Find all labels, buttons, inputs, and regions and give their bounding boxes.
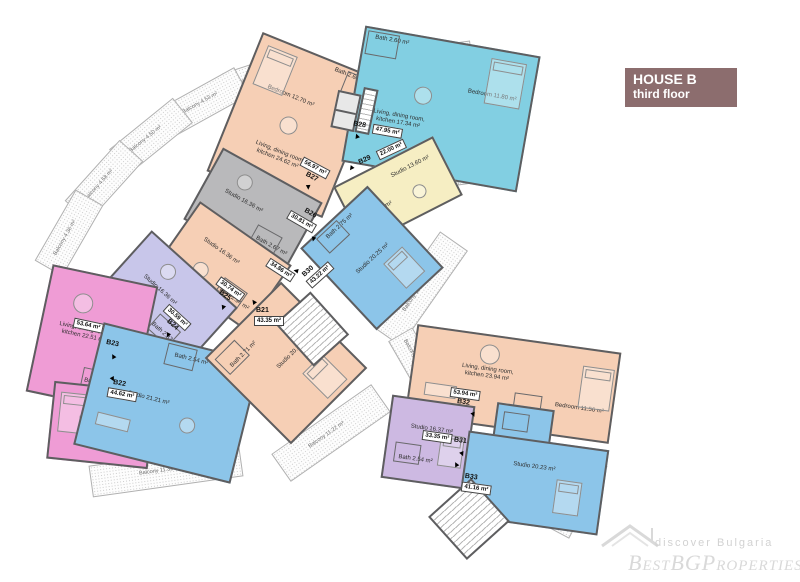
table-furniture [413, 85, 434, 106]
table-furniture [410, 182, 429, 201]
table-furniture [177, 416, 196, 435]
balcony-label: Balcony 11.22 m² [307, 420, 345, 449]
unit-id: B32 [457, 398, 471, 407]
pillow [585, 369, 612, 382]
entrance-arrow-icon: ▲ [304, 183, 312, 191]
house-title: HOUSE B [633, 71, 729, 88]
floor-subtitle: third floor [633, 88, 729, 102]
table-furniture [479, 343, 502, 366]
entrance-arrow-icon: ▲ [457, 448, 467, 458]
unit-tag-B21: ▲ B21 43.35 m² [248, 298, 294, 338]
room-label-living: Living, dining room, kitchen 23.94 m² [453, 362, 522, 385]
unit-id: B28 [353, 120, 367, 129]
pillow [387, 251, 408, 271]
floor-plan-page: Balcony 4.53 m² Balcony 4.53 m² Balcony … [0, 0, 800, 582]
plan-header: HOUSE B third floor [625, 68, 737, 107]
table-furniture [71, 292, 95, 316]
entrance-arrow-icon: ▲ [291, 266, 301, 276]
balcony-label: Balcony 4.53 m² [181, 91, 219, 116]
entrance-arrow-icon: ▲ [309, 234, 319, 244]
entrance-arrow-icon: ▲ [248, 296, 259, 307]
bed-furniture [552, 479, 582, 516]
entrance-arrow-icon: ▲ [451, 459, 462, 470]
watermark-tagline: discover Bulgaria [655, 537, 773, 549]
bath-partition [502, 411, 530, 432]
unit-tag-B32: 53.94 m² B32 ▲ [445, 387, 496, 433]
bed-furniture [383, 246, 425, 289]
balcony-label: Balcony 4.36 m² [53, 219, 78, 256]
entrance-arrow-icon: ▲ [352, 131, 362, 141]
bed-furniture [577, 366, 615, 412]
pillow [266, 49, 293, 67]
unit-area-box: 43.35 m² [254, 316, 284, 326]
unit-tag-B33: ▲ B33 41.16 m² [447, 460, 498, 506]
entrance-arrow-icon: ▲ [346, 163, 357, 174]
table-furniture [234, 172, 256, 194]
unit-id: B33 [464, 473, 478, 482]
unit-id: B23 [106, 339, 120, 349]
table-furniture [157, 261, 180, 284]
balcony-segment: Balcony 4.36 m² [35, 189, 104, 276]
bath-partition [215, 340, 250, 375]
pillow [558, 483, 579, 495]
watermark-brand: BestBGProperties [628, 550, 800, 576]
pillow [492, 61, 523, 75]
shaft-divider [336, 109, 356, 115]
entrance-arrow-icon: ▲ [468, 409, 478, 419]
bath-partition [393, 442, 422, 465]
table-furniture [277, 114, 300, 137]
bed-furniture [252, 45, 297, 96]
unit-id: B22 [113, 379, 127, 388]
bath-partition [364, 30, 400, 59]
balcony-label: Balcony 4.50 m² [128, 124, 163, 154]
room-label-studio: Studio 20.23 m² [504, 460, 564, 475]
entrance-arrow-icon: ▲ [218, 302, 228, 312]
unit-area-box: 41.16 m² [461, 481, 492, 495]
unit-id: B31 [453, 436, 467, 445]
unit-id: B21 [256, 307, 269, 314]
unit-area-box: 44.62 m² [107, 387, 138, 402]
unit-tag-B22: B22 44.62 m² [103, 378, 155, 425]
entrance-arrow-icon: ▲ [163, 330, 174, 341]
